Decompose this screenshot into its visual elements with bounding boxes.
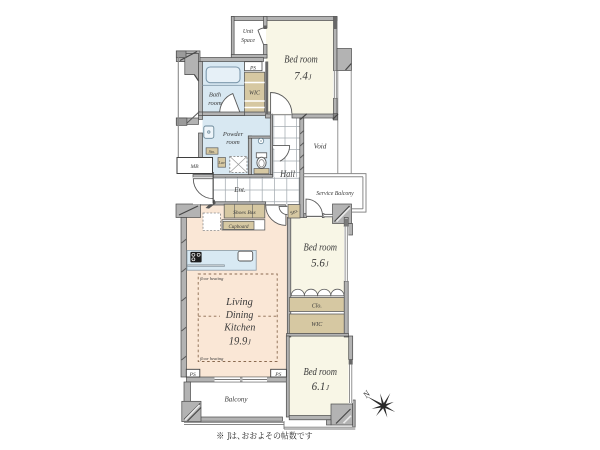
svg-text:Bed room: Bed room	[284, 55, 318, 66]
svg-text:Cupboard: Cupboard	[228, 225, 249, 230]
svg-text:room: room	[226, 139, 240, 146]
svg-text:Ent.: Ent.	[233, 186, 246, 194]
svg-text:19.9: 19.9	[229, 336, 248, 348]
svg-text:Service Balcony: Service Balcony	[316, 190, 354, 197]
svg-text:floor heating: floor heating	[200, 276, 224, 281]
svg-text:MB: MB	[190, 164, 200, 170]
svg-text:Lav: Lav	[218, 160, 225, 165]
svg-text:Balcony: Balcony	[225, 395, 249, 403]
svg-text:Clo.: Clo.	[312, 304, 322, 310]
svg-text:Bath: Bath	[209, 92, 221, 99]
svg-text:Dining: Dining	[225, 309, 254, 321]
svg-text:room: room	[208, 100, 222, 107]
svg-text:Powder: Powder	[222, 131, 244, 138]
svg-text:Living: Living	[225, 296, 253, 308]
svg-text:Shoes Box: Shoes Box	[233, 210, 256, 216]
svg-text:PS: PS	[189, 372, 196, 378]
svg-text:WIC: WIC	[249, 91, 261, 97]
svg-text:Void: Void	[314, 143, 327, 151]
svg-text:7.4: 7.4	[294, 71, 308, 83]
svg-text:Sto.: Sto.	[209, 149, 215, 154]
svg-text:Bed room: Bed room	[303, 367, 337, 378]
svg-text:Bed room: Bed room	[304, 243, 338, 254]
svg-text:floor heating: floor heating	[200, 356, 224, 361]
svg-text:Kitchen: Kitchen	[223, 322, 255, 334]
svg-text:6.1: 6.1	[312, 381, 326, 393]
svg-text:Hall: Hall	[279, 169, 295, 179]
svg-text:PS: PS	[249, 66, 256, 72]
svg-text:WIC: WIC	[311, 322, 323, 328]
svg-text:Unit: Unit	[243, 29, 254, 35]
svg-text:5.6: 5.6	[311, 258, 325, 270]
svg-text:Space: Space	[241, 38, 255, 44]
svg-text:PS: PS	[274, 372, 281, 378]
